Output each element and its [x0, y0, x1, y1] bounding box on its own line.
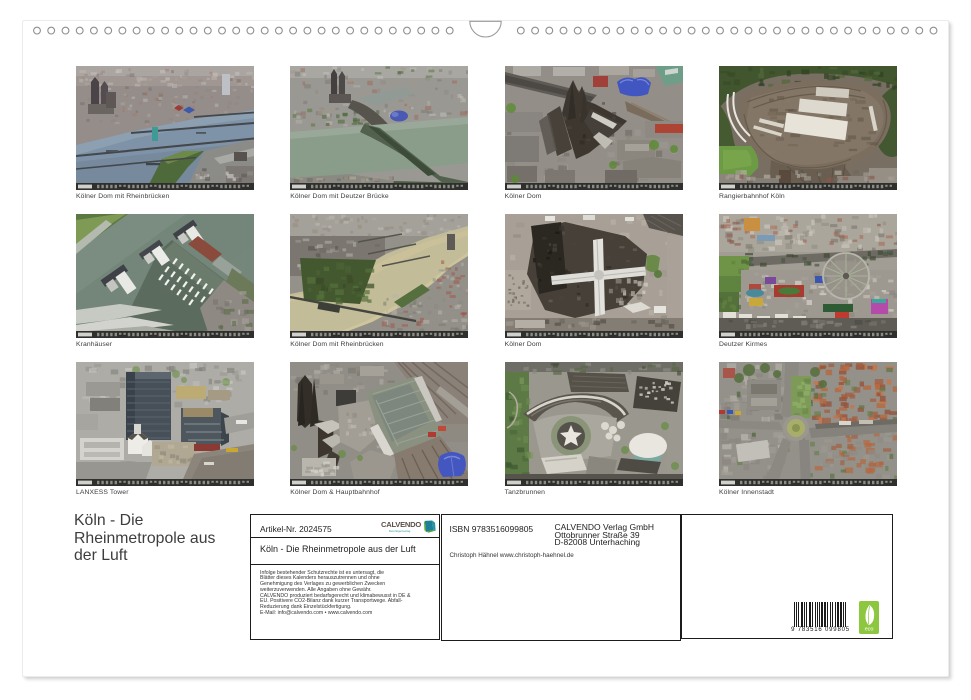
svg-text:eco: eco — [864, 627, 873, 633]
